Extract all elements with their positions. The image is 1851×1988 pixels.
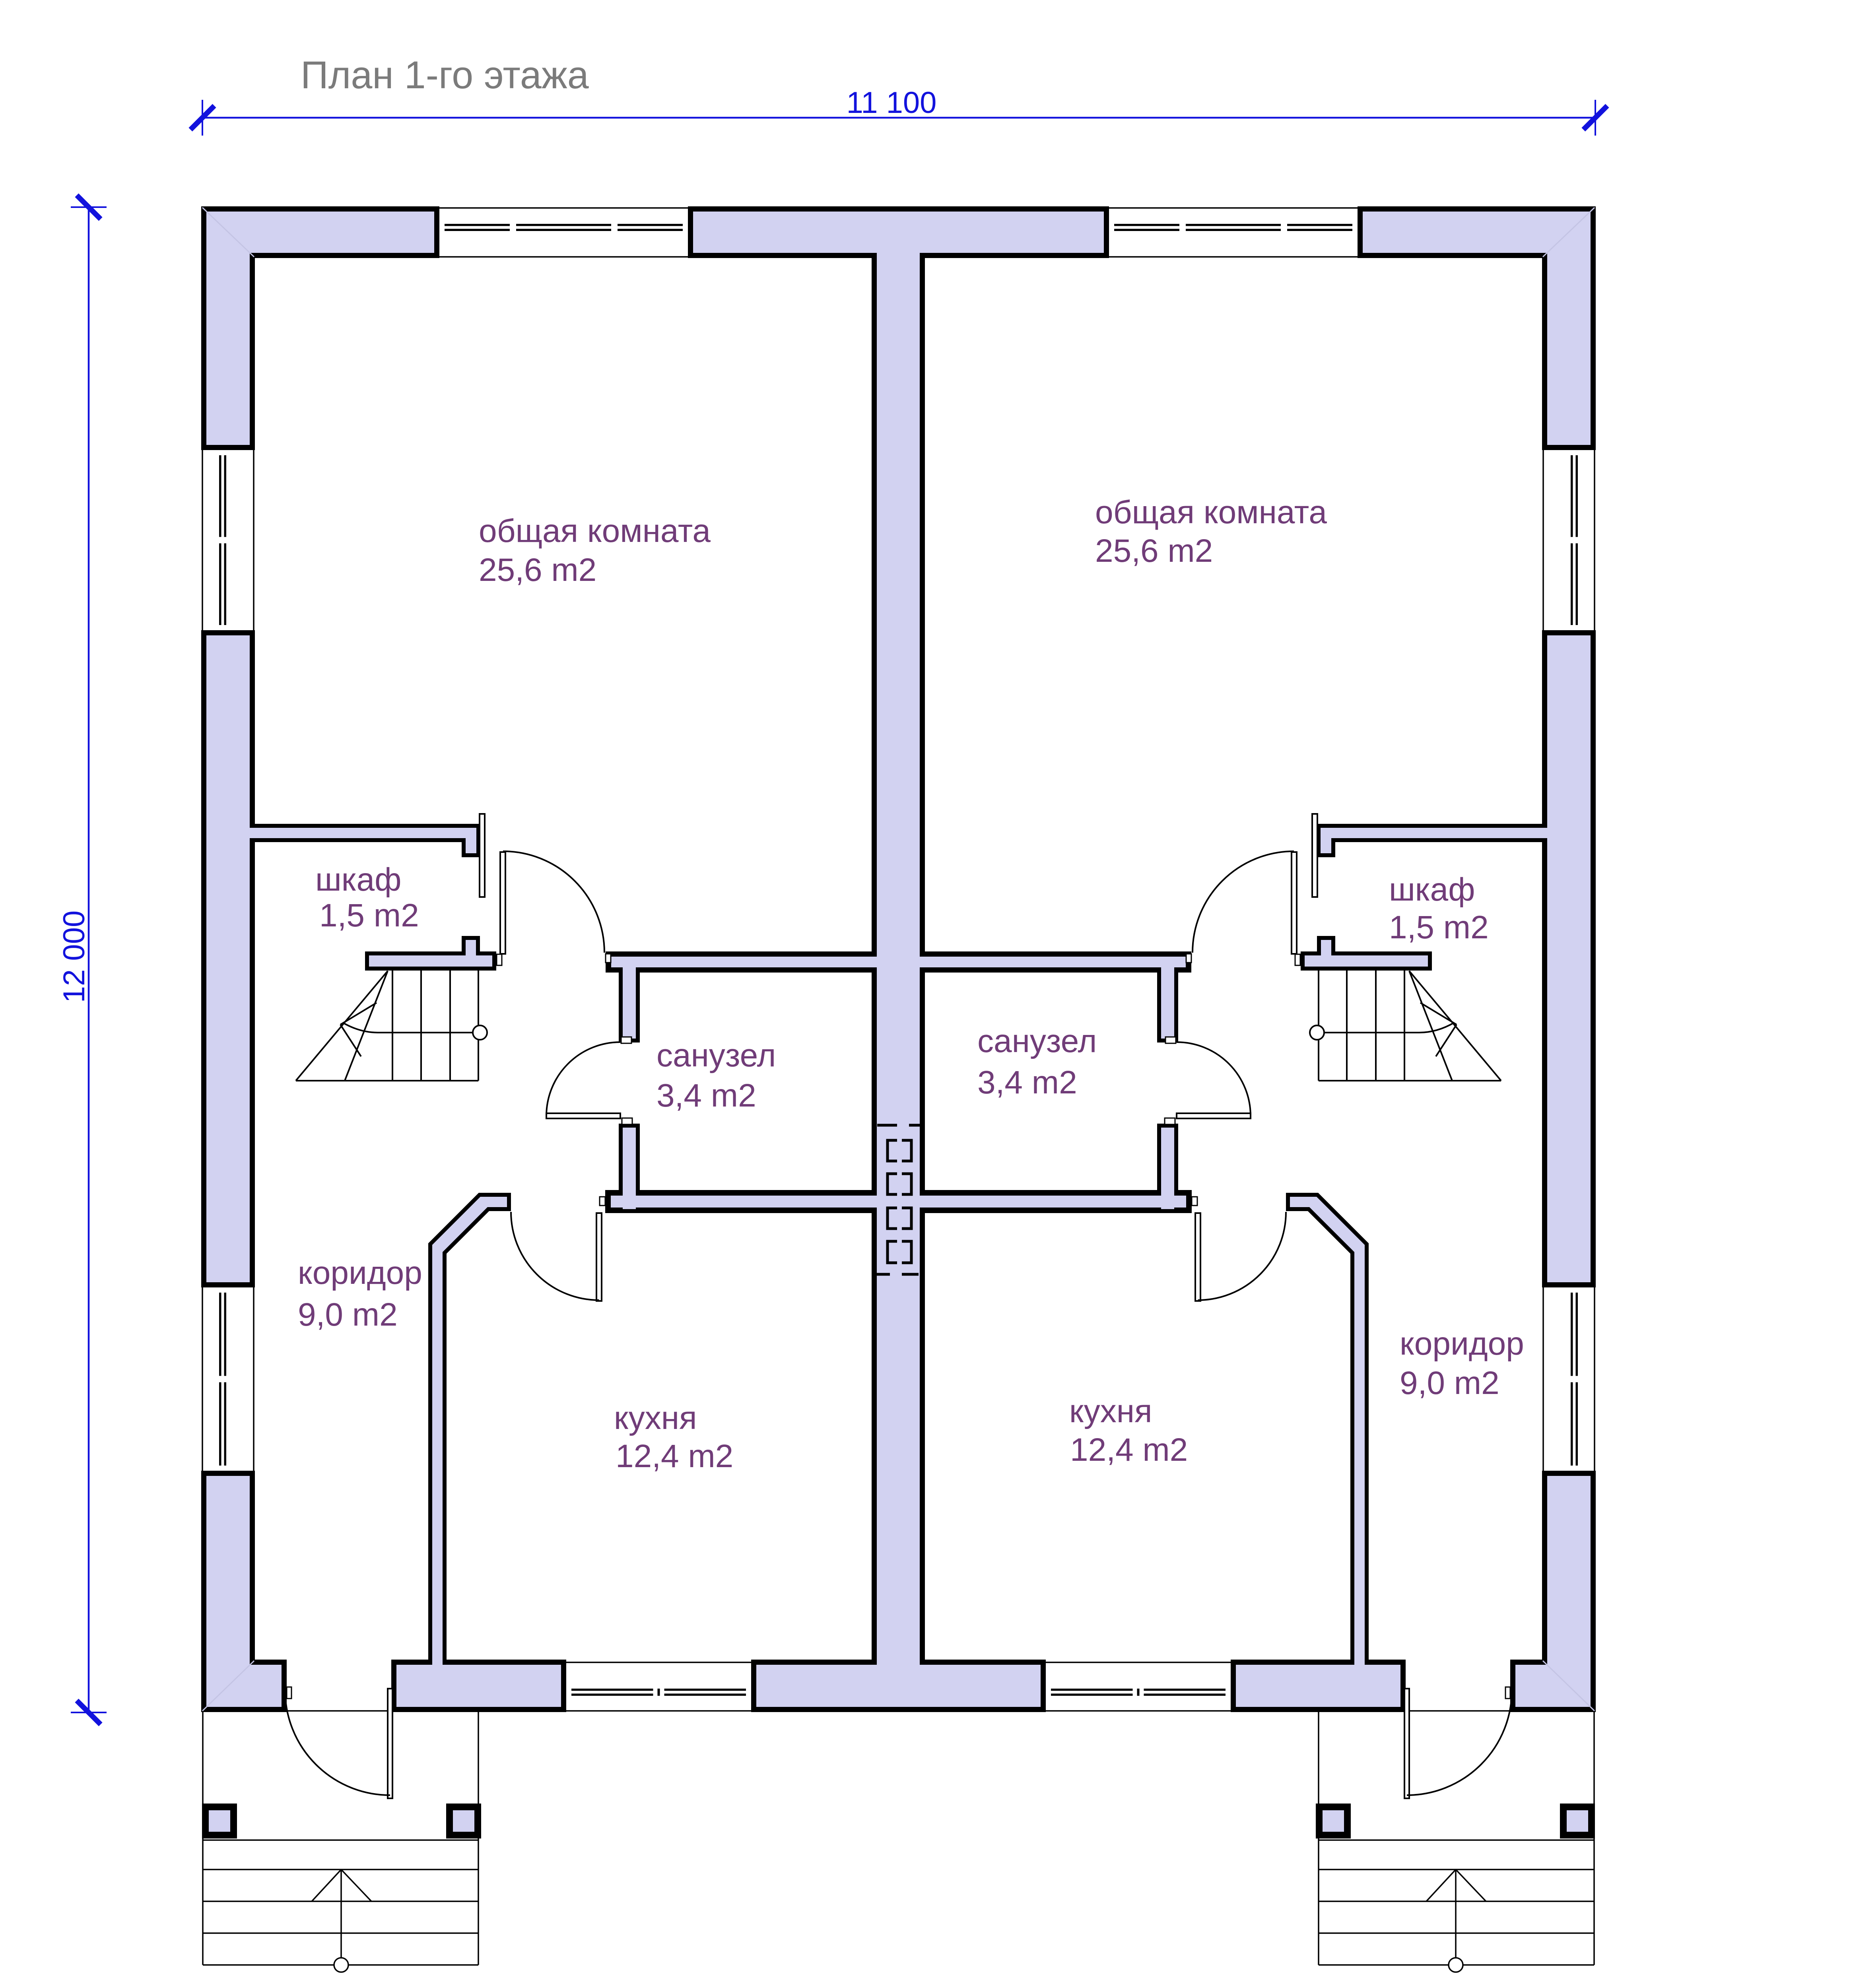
- svg-text:25,6 m2: 25,6 m2: [479, 552, 596, 588]
- svg-text:1,5 m2: 1,5 m2: [319, 897, 419, 934]
- svg-text:3,4 m2: 3,4 m2: [656, 1077, 756, 1114]
- svg-text:9,0 m2: 9,0 m2: [1400, 1365, 1499, 1401]
- svg-text:общая комната: общая комната: [479, 513, 711, 549]
- svg-text:санузел: санузел: [656, 1037, 776, 1074]
- svg-text:кухня: кухня: [1069, 1393, 1152, 1429]
- svg-text:12,4 m2: 12,4 m2: [616, 1438, 733, 1474]
- svg-text:План 1-го этажа: План 1-го этажа: [301, 53, 589, 97]
- svg-text:25,6 m2: 25,6 m2: [1095, 533, 1213, 569]
- svg-text:9,0 m2: 9,0 m2: [298, 1297, 398, 1333]
- svg-text:11 100: 11 100: [847, 86, 937, 120]
- svg-text:12,4 m2: 12,4 m2: [1070, 1432, 1188, 1468]
- svg-text:коридор: коридор: [1400, 1326, 1524, 1362]
- svg-text:общая комната: общая комната: [1095, 494, 1327, 530]
- svg-text:санузел: санузел: [977, 1023, 1097, 1059]
- svg-text:1,5 m2: 1,5 m2: [1389, 909, 1489, 945]
- svg-text:коридор: коридор: [298, 1255, 422, 1291]
- svg-text:шкаф: шкаф: [1389, 872, 1475, 908]
- svg-text:шкаф: шкаф: [315, 862, 402, 898]
- svg-text:3,4 m2: 3,4 m2: [977, 1064, 1077, 1101]
- svg-text:12 000: 12 000: [57, 911, 91, 1003]
- svg-text:кухня: кухня: [614, 1400, 697, 1436]
